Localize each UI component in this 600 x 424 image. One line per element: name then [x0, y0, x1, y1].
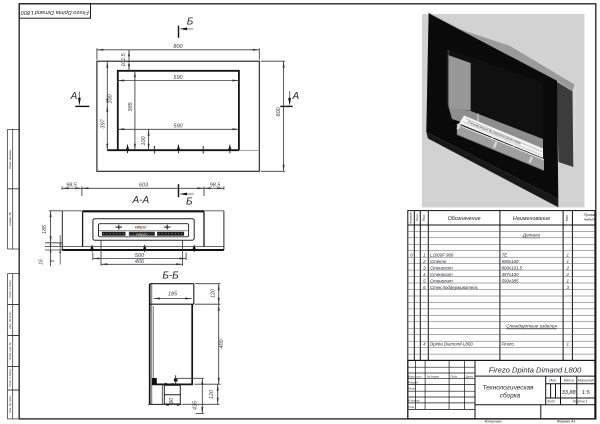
- svg-text:800х101,5: 800х101,5: [502, 265, 523, 270]
- svg-text:120: 120: [209, 390, 215, 399]
- svg-text:A: A: [70, 91, 78, 102]
- svg-text:2: 2: [565, 272, 569, 277]
- svg-text:ТЕ: ТЕ: [502, 252, 508, 257]
- svg-text:101,5: 101,5: [121, 52, 127, 66]
- svg-text:Инв. № дубл.: Инв. № дубл.: [8, 311, 12, 328]
- svg-text:33,88: 33,88: [562, 390, 577, 396]
- svg-text:Технологическая: Технологическая: [483, 385, 535, 392]
- svg-text:Стенолит: Стенолит: [430, 265, 453, 270]
- svg-text:5: 5: [50, 259, 56, 262]
- svg-text:Стек.поддерживатель: Стек.поддерживатель: [430, 285, 479, 290]
- svg-text:Подп. и дата: Подп. и дата: [8, 280, 12, 298]
- svg-text:L1000F 900: L1000F 900: [430, 252, 454, 257]
- svg-text:Firezo: Firezo: [502, 342, 515, 347]
- svg-text:Взам. инв. №: Взам. инв. №: [8, 342, 12, 359]
- svg-text:98,5: 98,5: [210, 183, 221, 189]
- svg-text:Firezo Dpinta Dimand L800: Firezo Dpinta Dimand L800: [20, 9, 89, 15]
- svg-text:Б-Б: Б-Б: [162, 271, 179, 282]
- svg-text:90: 90: [169, 398, 175, 404]
- svg-text:Утв.: Утв.: [408, 405, 415, 409]
- svg-text:120: 120: [210, 289, 216, 298]
- svg-text:98,5: 98,5: [66, 183, 77, 189]
- svg-text:16: 16: [39, 259, 45, 265]
- svg-text:сборка: сборка: [500, 392, 521, 400]
- svg-text:Дата: Дата: [465, 375, 474, 379]
- svg-text:Стекло: Стекло: [430, 259, 447, 264]
- svg-text:Стенолит: Стенолит: [430, 278, 453, 283]
- svg-text:2: 2: [565, 265, 569, 270]
- svg-text:Изм Лист: Изм Лист: [408, 375, 422, 379]
- svg-text:Копировал: Копировал: [485, 419, 502, 423]
- svg-text:590х385: 590х385: [502, 278, 519, 283]
- svg-text:Подп.: Подп.: [451, 375, 459, 379]
- svg-text:185: 185: [42, 224, 48, 234]
- svg-text:Лит.: Лит.: [548, 379, 557, 383]
- svg-text:Б: Б: [186, 197, 193, 208]
- svg-text:435: 435: [193, 400, 199, 410]
- svg-text:Листов 1: Листов 1: [572, 400, 587, 404]
- svg-text:397х100: 397х100: [502, 272, 519, 277]
- svg-text:чание: чание: [584, 217, 596, 222]
- svg-text:406: 406: [135, 259, 145, 265]
- svg-text:Детали: Детали: [522, 233, 541, 238]
- svg-text:800: 800: [173, 44, 183, 50]
- svg-text:100: 100: [107, 93, 113, 103]
- svg-text:590х100: 590х100: [502, 259, 519, 264]
- svg-text:Масса: Масса: [564, 379, 574, 383]
- svg-text:400: 400: [219, 340, 225, 349]
- svg-text:Кол.: Кол.: [565, 214, 569, 221]
- svg-text:Пров.: Пров.: [408, 387, 416, 391]
- svg-text:590: 590: [173, 124, 183, 130]
- svg-text:1:5: 1:5: [582, 390, 591, 396]
- svg-text:397: 397: [101, 118, 107, 128]
- svg-text:600: 600: [276, 106, 282, 116]
- svg-text:Поз.: Поз.: [422, 214, 426, 221]
- svg-text:2: 2: [422, 259, 426, 264]
- svg-text:603: 603: [139, 183, 149, 189]
- svg-text:FIREZO: FIREZO: [135, 226, 147, 230]
- svg-text:100: 100: [141, 135, 147, 145]
- svg-text:Лист: Лист: [546, 400, 556, 404]
- svg-text:Б: Б: [187, 17, 194, 28]
- svg-text:FIREZO: FIREZO: [136, 232, 148, 236]
- svg-text:Н.контр.: Н.контр.: [408, 399, 420, 403]
- svg-text:590: 590: [173, 75, 183, 81]
- svg-text:185: 185: [168, 292, 178, 298]
- svg-text:Перв. примен.: Перв. примен.: [8, 149, 12, 169]
- svg-text:Инв. № подл.: Инв. № подл.: [8, 395, 12, 413]
- svg-text:Масштаб: Масштаб: [578, 379, 594, 383]
- svg-text:Формат: Формат: [409, 211, 413, 223]
- svg-text:№ докум.: № докум.: [427, 375, 440, 379]
- svg-text:Firezo Dpinta Dimand L800: Firezo Dpinta Dimand L800: [489, 366, 582, 375]
- svg-text:Справ. №: Справ. №: [8, 211, 12, 225]
- svg-text:Формат А3: Формат А3: [557, 419, 576, 423]
- svg-text:385: 385: [128, 101, 134, 111]
- svg-text:А-А: А-А: [131, 195, 149, 206]
- svg-text:Стандартные изделия: Стандартные изделия: [506, 324, 557, 329]
- svg-text:Подп. и дата: Подп. и дата: [8, 369, 12, 387]
- svg-text:A: A: [291, 91, 299, 102]
- svg-text:Зона: Зона: [415, 214, 419, 221]
- svg-text:Dpinta Diamond-L800: Dpinta Diamond-L800: [430, 342, 473, 347]
- svg-text:Наименование: Наименование: [513, 216, 550, 222]
- svg-text:Стенолит: Стенолит: [430, 272, 453, 277]
- svg-text:Разраб.: Разраб.: [408, 380, 418, 384]
- svg-text:Обозначение: Обозначение: [448, 216, 481, 222]
